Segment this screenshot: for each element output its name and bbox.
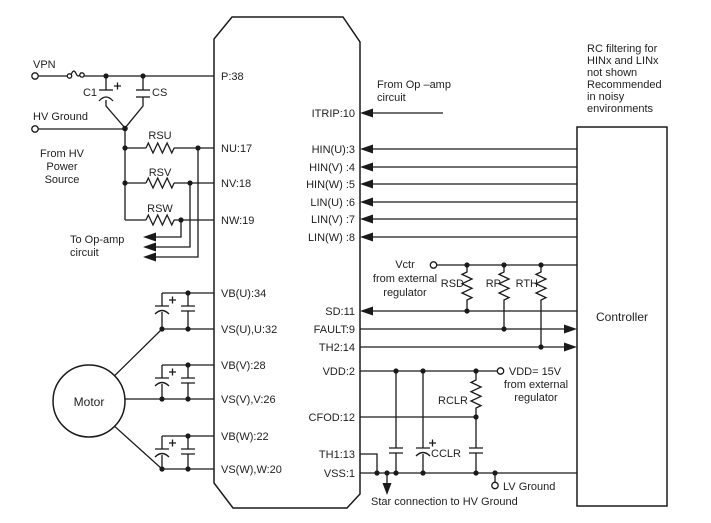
rc-filtering-note: RC filtering for [587,43,658,55]
vctr-label: Vctr [395,259,415,271]
rc-filtering-note: in noisy [587,91,625,103]
from-opamp-note: From Op –amp [377,79,451,91]
cap-c1-plus-icon [114,83,121,90]
vdd-15v-label: from external [504,379,568,391]
rth-label: RTH [516,278,538,290]
rsu-label: RSU [148,130,171,142]
arrow-into-ic-icon [360,180,373,189]
cap-c1-lead [106,100,125,128]
cap-bsv [181,365,195,399]
rc-filtering-note: not shown [587,67,637,79]
vpn-terminal-icon [32,73,38,79]
wire-phase-u [115,329,214,376]
lv-ground-label: LV Ground [503,481,555,493]
cap-bsv-polar-plus-icon [169,369,176,376]
ic-pin-label: P:38 [221,71,244,83]
c1-label: C1 [83,87,97,99]
cap-vdd [389,371,403,473]
hv-ground-terminal-icon [32,126,38,132]
ic-pin-label: VS(U),U:32 [221,324,277,336]
ic-pin-label: NU:17 [221,143,252,155]
vdd-15v-label: regulator [514,392,558,404]
ic-pin-label: TH1:13 [319,449,355,461]
from-opamp-note: circuit [377,92,406,104]
ic-pin-label: NV:18 [221,178,251,190]
cap-cs-lead [125,97,143,128]
cap-bsw [181,436,195,469]
ic-pin-label: LIN(U) :6 [310,197,355,209]
rsw-label: RSW [147,203,173,215]
ic-pin-label: LIN(W) :8 [308,232,355,244]
ic-pin-label: HIN(W) :5 [306,179,355,191]
from-hv-note: From HV [40,148,85,160]
cap-vdd-polar [416,371,430,473]
resistor-rsu [146,143,174,153]
cap-bsv-polar [155,365,169,399]
cap-bsu-polar-plus-icon [169,297,176,304]
rc-filtering-note: Recommended [587,79,662,91]
controller-label: Controller [596,310,648,324]
arrow-into-ic-icon [360,307,373,316]
ic-pin-label: CFOD:12 [309,412,355,424]
ic-pin-label: VB(U):34 [221,288,266,300]
vpn-label: VPN [33,59,56,71]
resistor-rp [499,265,509,329]
arrow-star-ground-icon [383,483,392,495]
cap-cclr [469,417,483,473]
cap-bsu-polar [155,293,169,329]
ic-pin-label: VS(V),V:26 [221,394,276,406]
cap-vdd-polar-plus-icon [429,440,436,447]
schematic-canvas: VPN HV Ground C1 CS From HV Power Source… [0,0,711,523]
vctr-label: regulator [383,287,427,299]
gate-driver-schematic: VPN HV Ground C1 CS From HV Power Source… [0,0,711,523]
arrow-into-ic-icon [360,215,373,224]
rc-filtering-note: HINx and LINx [587,55,659,67]
vctr-label: from external [373,273,437,285]
wire-phase-w [115,426,214,469]
to-opamp-note: circuit [70,247,99,259]
from-hv-note: Source [45,174,80,186]
ic-pin-label: VDD:2 [323,366,355,378]
ic-pin-label: LIN(V) :7 [311,214,355,226]
rclr-label: RCLR [438,395,468,407]
ic-pin-label: VB(W):22 [221,431,269,443]
vctr-terminal-icon [430,262,436,268]
ic-pin-label: VSS:1 [324,468,355,480]
arrow-into-controller-icon [564,343,577,352]
arrow-into-ic-icon [360,145,373,154]
cclr-label: CCLR [431,448,461,460]
to-opamp-note: To Op-amp [70,234,124,246]
ic-pin-label: SD:11 [325,306,355,318]
ic-pin-label: FAULT:9 [314,324,355,336]
ic-pin-label: TH2:14 [319,342,355,354]
arrow-into-ic-icon [360,109,373,118]
rsv-label: RSV [149,167,172,179]
resistor-rclr [471,371,481,417]
arrow-into-ic-icon [360,233,373,242]
switch-contact-icon [67,74,71,78]
wire-opamp-w [154,220,181,237]
resistor-rsv [146,178,174,188]
from-hv-note: Power [46,161,78,173]
ic-pin-label: ITRIP:10 [312,108,355,120]
star-connection-note: Star connection to HV Ground [371,496,518,508]
ic-pin-label: NW:19 [221,215,254,227]
cap-bsw-polar-plus-icon [169,440,176,447]
arrow-to-opamp-icon [143,253,156,262]
cap-bsu [181,293,195,329]
ic-pin-label: VB(V):28 [221,360,266,372]
ic-pin-label: HIN(U):3 [312,144,355,156]
vdd-terminal-icon [497,368,503,374]
rc-filtering-note: environments [587,103,654,115]
vdd-15v-label: VDD= 15V [509,366,562,378]
arrow-into-controller-icon [564,325,577,334]
arrow-to-opamp-icon [143,233,156,242]
wire-th1 [360,454,377,473]
rp-label: RP [486,278,501,290]
switch-contact-icon [80,73,84,77]
lv-ground-terminal-icon [492,482,498,488]
rsd-label: RSD [441,278,464,290]
resistor-rsw [146,215,174,225]
ic-pin-label: VS(W),W:20 [221,464,282,476]
arrow-into-ic-icon [360,163,373,172]
hv-ground-label: HV Ground [33,111,88,123]
arrow-into-ic-icon [360,198,373,207]
motor-label: Motor [74,395,105,409]
cs-label: CS [152,87,167,99]
arrow-to-opamp-icon [143,243,156,252]
ic-pin-label: HIN(V) :4 [309,162,355,174]
